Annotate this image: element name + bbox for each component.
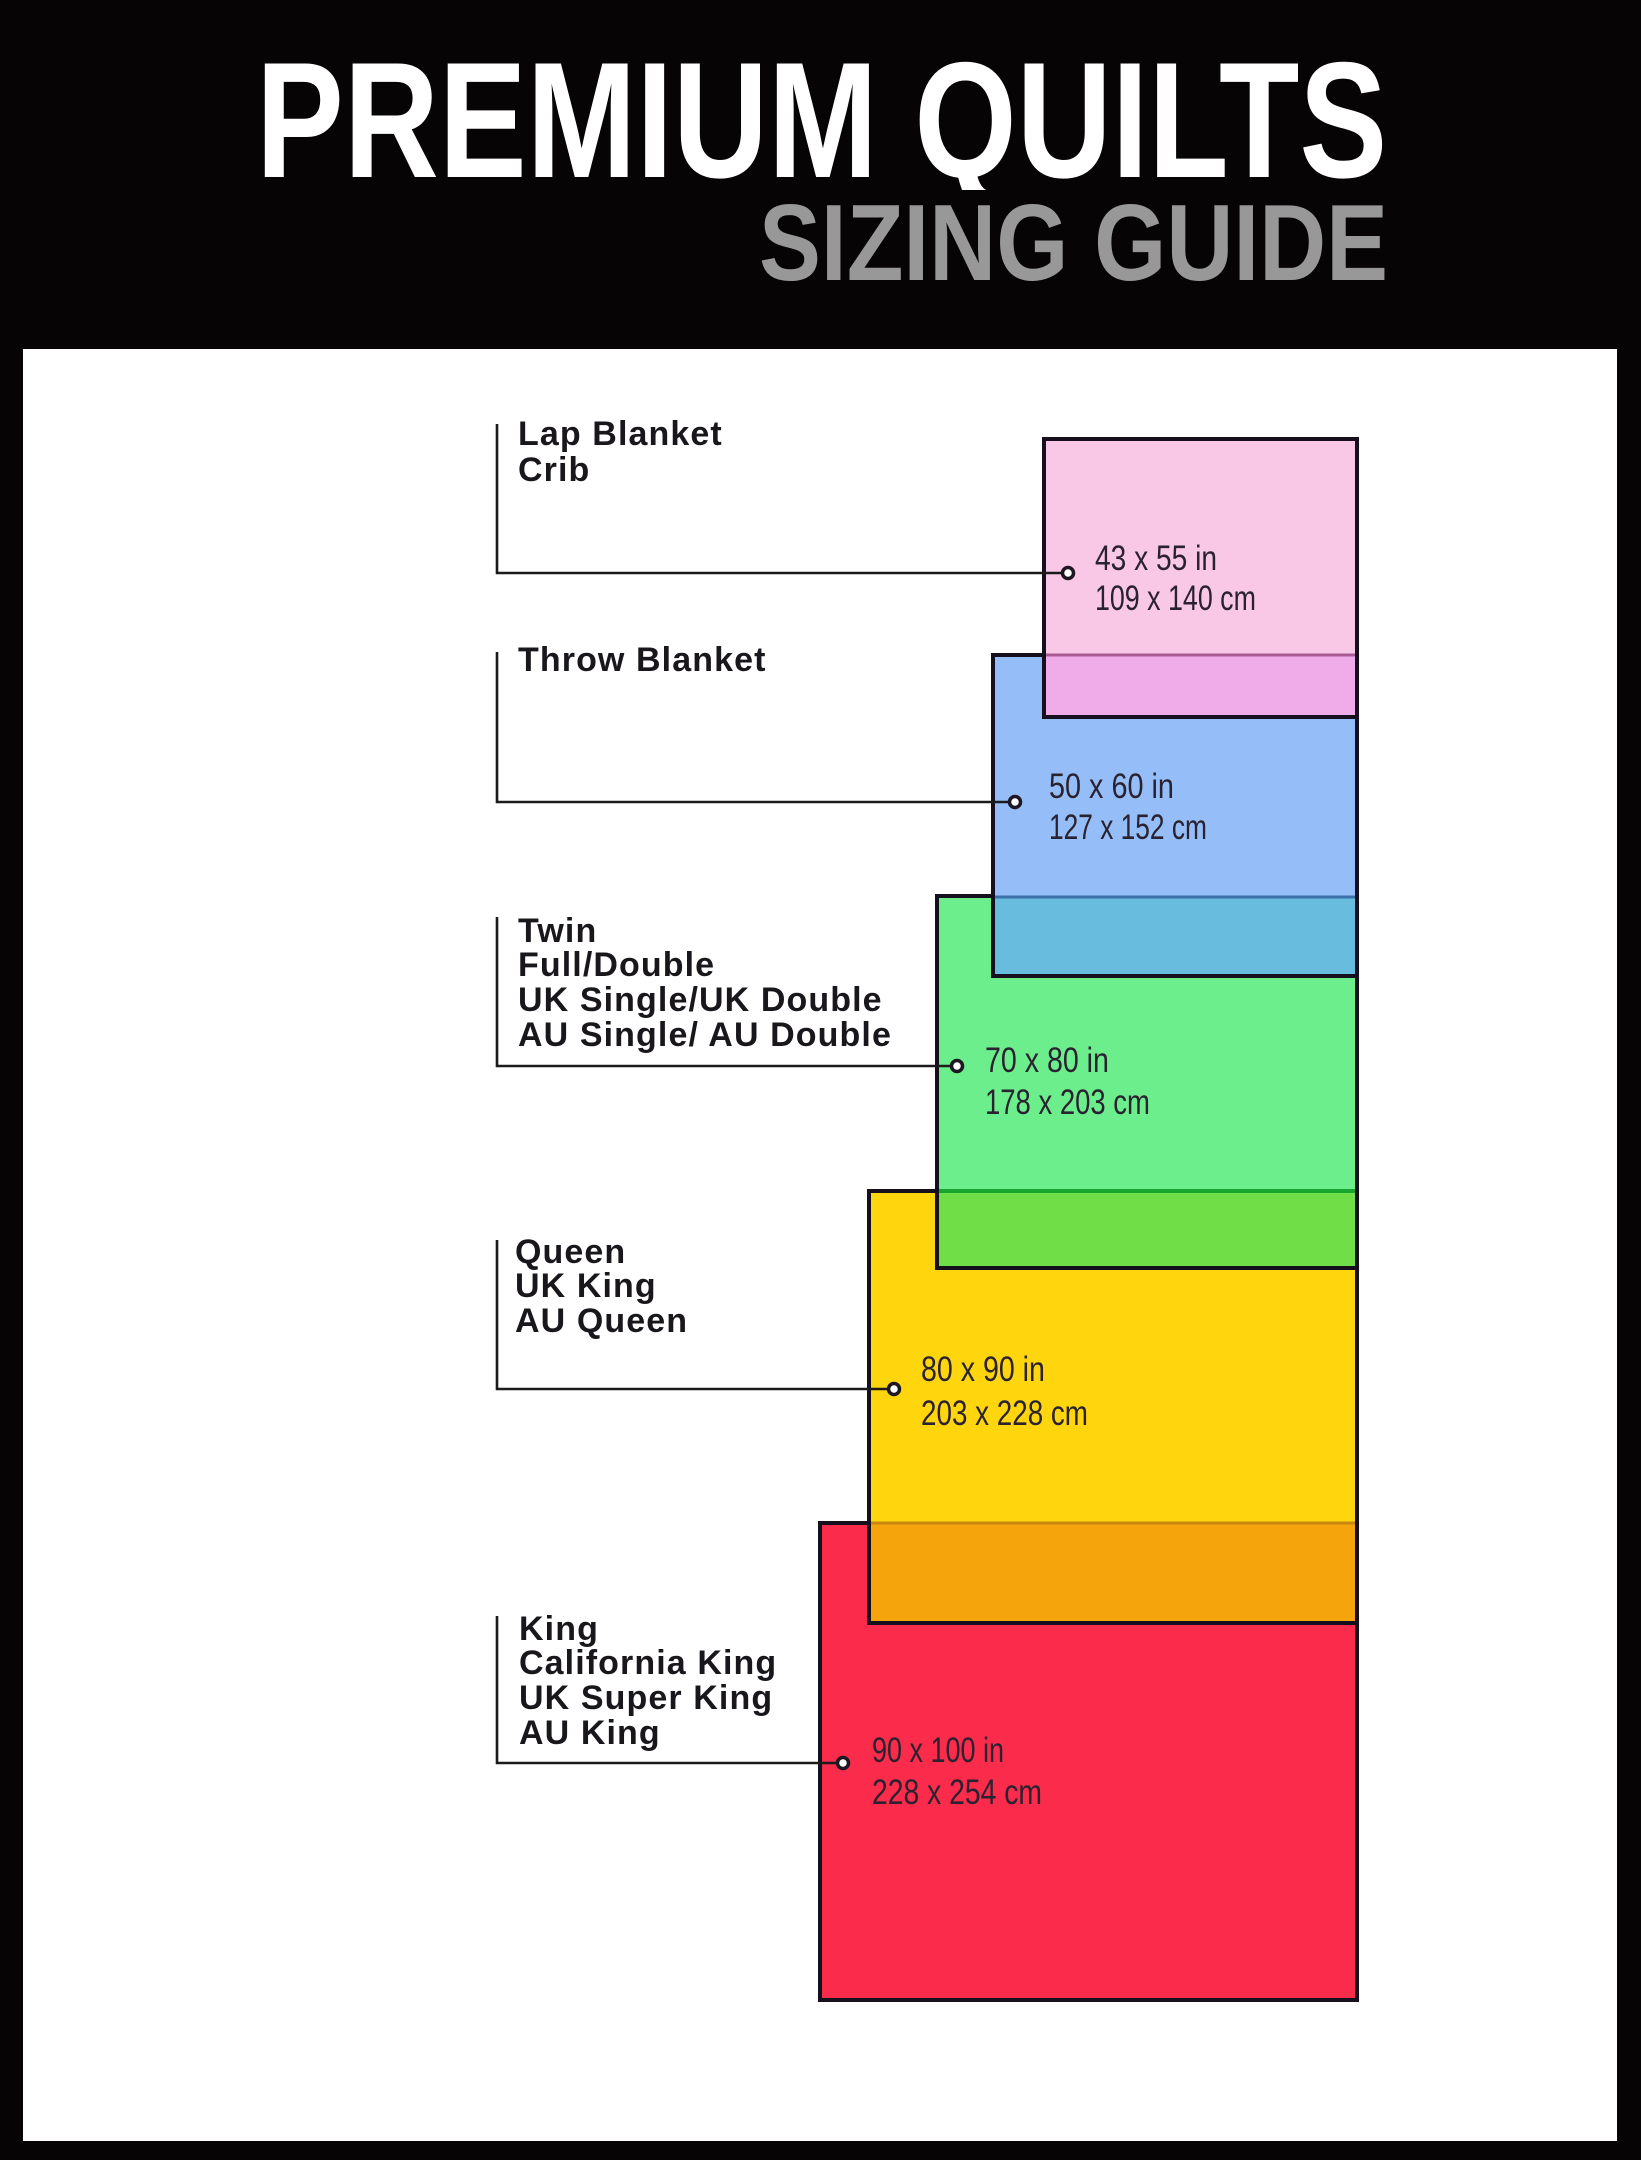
svg-text:80 x 90 in: 80 x 90 in xyxy=(921,1349,1045,1388)
svg-text:UK King: UK King xyxy=(515,1267,657,1305)
svg-text:70 x 80 in: 70 x 80 in xyxy=(985,1040,1109,1079)
svg-text:43 x 55 in: 43 x 55 in xyxy=(1095,538,1217,578)
svg-text:UK Super King: UK Super King xyxy=(519,1679,773,1717)
svg-text:50 x 60 in: 50 x 60 in xyxy=(1049,766,1174,805)
svg-text:127 x 152 cm: 127 x 152 cm xyxy=(1049,807,1207,847)
svg-text:SIZING GUIDE: SIZING GUIDE xyxy=(759,182,1388,304)
svg-text:Crib: Crib xyxy=(518,451,590,489)
svg-text:228 x 254 cm: 228 x 254 cm xyxy=(872,1772,1042,1812)
svg-text:UK Single/UK Double: UK Single/UK Double xyxy=(518,981,883,1019)
svg-text:Queen: Queen xyxy=(515,1233,626,1271)
svg-text:203 x 228 cm: 203 x 228 cm xyxy=(921,1393,1088,1433)
svg-text:109 x 140 cm: 109 x 140 cm xyxy=(1095,579,1256,618)
svg-text:AU King: AU King xyxy=(519,1714,661,1752)
svg-text:Lap Blanket: Lap Blanket xyxy=(518,415,723,453)
svg-text:AU Single/ AU Double: AU Single/ AU Double xyxy=(518,1016,892,1054)
svg-text:AU Queen: AU Queen xyxy=(515,1302,688,1340)
svg-text:California King: California King xyxy=(519,1644,777,1682)
svg-text:King: King xyxy=(519,1610,599,1648)
svg-text:Twin: Twin xyxy=(518,912,597,950)
svg-text:90 x 100 in: 90 x 100 in xyxy=(872,1731,1004,1770)
svg-text:Full/Double: Full/Double xyxy=(518,946,715,984)
svg-text:178 x 203 cm: 178 x 203 cm xyxy=(985,1083,1150,1122)
svg-text:Throw Blanket: Throw Blanket xyxy=(518,641,767,679)
